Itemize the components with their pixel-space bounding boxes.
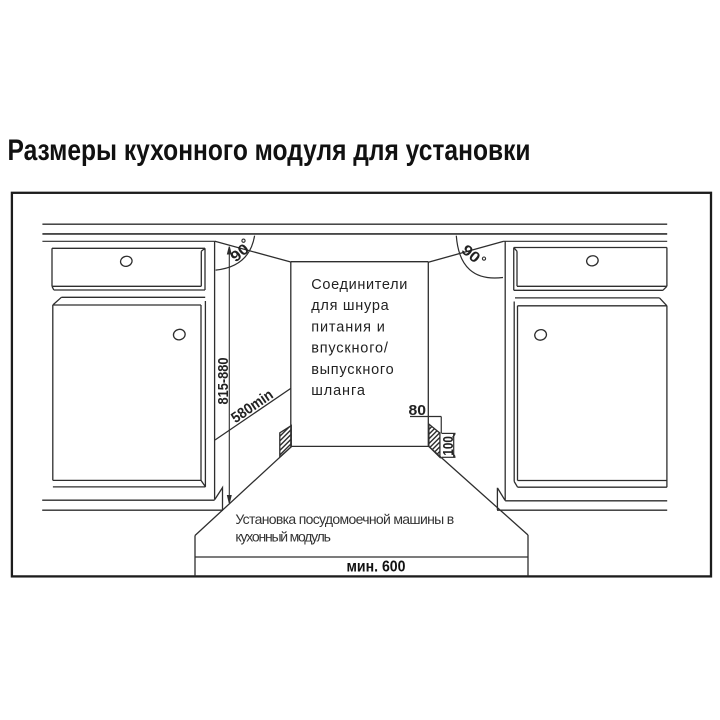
svg-text:выпускного: выпускного [311,362,394,378]
svg-text:100: 100 [440,436,457,456]
svg-text:Соединители: Соединители [311,277,407,293]
svg-text:Размеры кухонного модуля для у: Размеры кухонного модуля для установки [8,134,531,167]
svg-text:кухонный модуль: кухонный модуль [235,529,331,545]
svg-text:80: 80 [409,402,427,419]
svg-text:впускного/: впускного/ [311,340,389,356]
svg-text:шланга: шланга [311,383,366,399]
svg-text:Установка посудомоечной машины: Установка посудомоечной машины в [235,511,454,527]
svg-text:для шнура: для шнура [311,298,389,314]
svg-text:мин. 600: мин. 600 [347,559,406,576]
svg-text:815-880: 815-880 [215,358,232,405]
svg-text:питания и: питания и [311,319,385,335]
